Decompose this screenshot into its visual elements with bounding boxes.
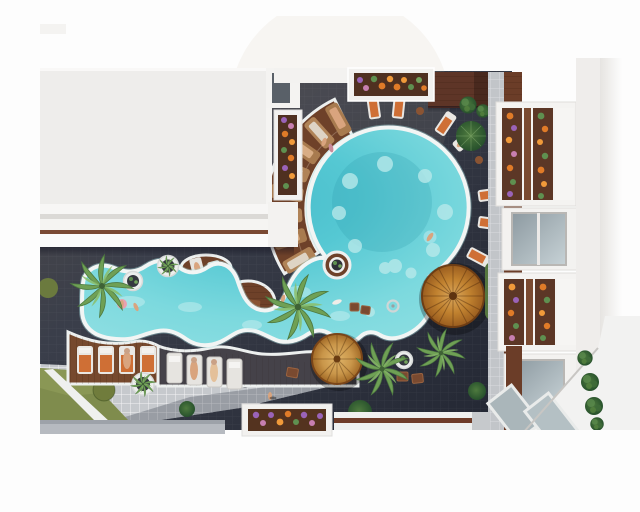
balcony-planter-module — [498, 273, 578, 351]
bottom-planter-box — [242, 404, 332, 436]
side-table — [416, 107, 424, 115]
left-building-roof — [40, 68, 272, 208]
render-canvas — [40, 16, 640, 496]
balcony-wood-trim — [40, 230, 290, 234]
pool-aerial-render — [40, 16, 640, 496]
round-planter — [158, 256, 179, 277]
shade-tree — [456, 121, 486, 151]
top-planter-box — [348, 68, 434, 101]
balcony-window-module — [502, 208, 580, 270]
round-planter — [324, 252, 350, 278]
shrub — [468, 382, 486, 400]
balcony-planter-module — [496, 102, 576, 206]
parasol-large — [419, 263, 491, 335]
side-table — [475, 156, 483, 164]
balcony-planter-soil — [278, 115, 297, 195]
shrub — [179, 401, 195, 417]
bottom-railing — [334, 412, 472, 430]
